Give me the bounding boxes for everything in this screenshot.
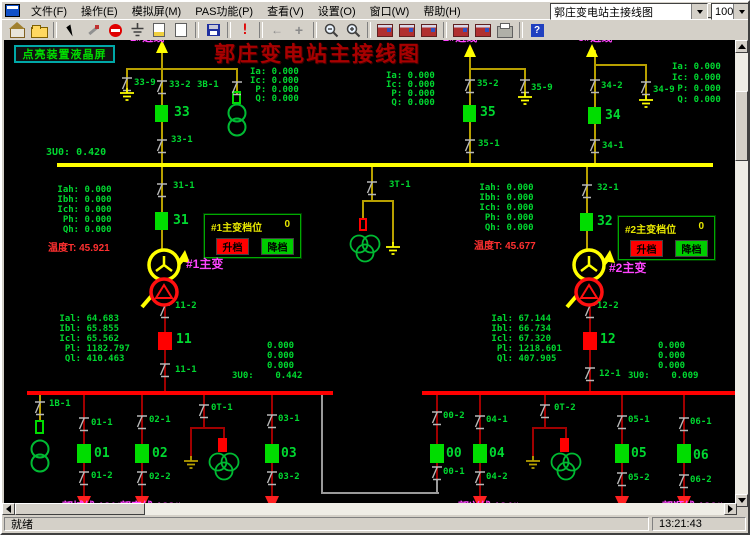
diagram-label: 2#进线 — [443, 40, 477, 44]
diagram-label: 06-2 — [690, 476, 712, 485]
transformer-pt2-icon[interactable] — [224, 103, 250, 144]
alert-icon[interactable]: ! — [234, 21, 256, 39]
disconnector-icon[interactable] — [154, 79, 170, 101]
diagram-label: 3T-1 — [389, 181, 411, 190]
diagram-label: 3U0: 0.442 — [232, 372, 302, 381]
diagram-label: 35-1 — [478, 140, 500, 149]
diagram-label: Icl: 67.320 — [486, 335, 551, 344]
breaker-11[interactable] — [158, 332, 172, 350]
open-icon[interactable] — [28, 21, 50, 39]
diagram-label: 0.000 — [267, 352, 294, 361]
toolbar-separator — [443, 22, 447, 38]
diagram-label: 01 — [94, 447, 110, 460]
tap-panel-1-value: 0 — [284, 219, 290, 234]
diagram-label: 32-1 — [597, 184, 619, 193]
diagram-label: Ia: 0.000 — [672, 63, 721, 72]
transformer-pt3-icon[interactable] — [207, 452, 241, 487]
diagram-label: 03 — [281, 447, 297, 460]
diagram-label: Ial: 64.683 — [54, 315, 119, 324]
view-selector-combobox[interactable]: 郭庄变电站主接线图 — [550, 3, 708, 20]
diagram-label: 02-2 — [149, 473, 171, 482]
zoom-in-icon[interactable] — [342, 21, 364, 39]
disconnector-icon[interactable] — [32, 400, 48, 422]
fuse-icon — [560, 438, 569, 452]
disconnector-icon[interactable] — [76, 416, 92, 438]
diagram-label: 3#进线 — [578, 40, 612, 44]
wire — [392, 200, 394, 244]
diagram-label: Ibl: 66.734 — [486, 325, 551, 334]
diagram-label: P: 0.000 — [672, 85, 721, 94]
diagram-label: Ich: 0.000 — [52, 206, 112, 215]
menu-item[interactable]: 查看(V) — [260, 1, 311, 21]
wire — [190, 427, 225, 429]
breaker-05[interactable] — [615, 444, 629, 463]
diagram-label: 03-1 — [278, 415, 300, 424]
tap-up-button-1[interactable]: 升档 — [216, 238, 249, 255]
disconnector-icon[interactable] — [579, 183, 595, 205]
wire — [532, 427, 567, 429]
flow-arrow-up-icon — [464, 44, 476, 57]
diagram-label: 1#进线 — [130, 40, 164, 44]
app-window: 文件(F)操作(E)模拟屏(M)PAS功能(P)查看(V)设置(O)窗口(W)帮… — [0, 0, 750, 535]
ground-icon — [523, 456, 543, 475]
breaker-34[interactable] — [588, 107, 601, 124]
diagram-label: 35-9 — [531, 84, 553, 93]
diagram-label: 0.000 — [658, 352, 685, 361]
toolbar-separator — [227, 22, 231, 38]
fuse-icon — [35, 420, 44, 434]
tap-panel-2-value: 0 — [698, 221, 704, 236]
breaker-01[interactable] — [77, 444, 91, 463]
device-1-icon[interactable] — [374, 21, 396, 39]
tap-panel-1-title: #1主变档位 — [211, 219, 262, 234]
diagram-label: 04 — [489, 447, 505, 460]
wire — [594, 64, 647, 66]
disconnector-icon[interactable] — [134, 414, 150, 436]
ground-icon — [181, 456, 201, 475]
toolbar-icons: !←+? — [6, 21, 548, 39]
vertical-scroll-thumb[interactable] — [735, 91, 748, 161]
diagram-label: Icl: 65.562 — [54, 335, 119, 344]
diagram-label: 01-1 — [91, 419, 113, 428]
diagram-label: Iah: 0.000 — [52, 186, 112, 195]
diagram-label: 04-1 — [486, 416, 508, 425]
zoom-level-value: 100% — [712, 6, 733, 18]
diagram-label: 3B-1 — [197, 81, 219, 90]
breaker-31[interactable] — [155, 212, 168, 230]
diagram-label: Qh: 0.000 — [52, 226, 112, 235]
diagram-label: 35-2 — [477, 80, 499, 89]
wire — [586, 167, 588, 251]
page-new-icon[interactable] — [170, 21, 192, 39]
diagram-label: 00 — [446, 447, 462, 460]
diagram-label: 06-1 — [690, 418, 712, 427]
disconnector-icon[interactable] — [582, 366, 598, 388]
breaker-02[interactable] — [135, 444, 149, 463]
breaker-32[interactable] — [580, 213, 593, 231]
diagram-label: 12-2 — [597, 302, 619, 311]
mdi-document-icon[interactable] — [5, 4, 20, 17]
home-icon[interactable] — [6, 21, 28, 39]
diagram-label: Pl: 1218.601 — [486, 345, 562, 354]
breaker-12[interactable] — [583, 332, 597, 350]
toolbar: !←+? — [2, 19, 748, 40]
diagram-label: Ic: 0.000 — [672, 74, 721, 83]
diagram-label: 00-2 — [443, 412, 465, 421]
tools-icon[interactable] — [82, 21, 104, 39]
menu-items: 文件(F)操作(E)模拟屏(M)PAS功能(P)查看(V)设置(O)窗口(W)帮… — [24, 1, 468, 21]
disconnector-icon[interactable] — [157, 362, 173, 384]
transformer-pt3-icon[interactable] — [549, 452, 583, 487]
horizontal-scrollbar[interactable] — [2, 503, 737, 515]
disconnector-icon[interactable] — [537, 403, 553, 425]
diagram-label: 0.000 — [658, 342, 685, 351]
diagram-label: 34 — [605, 109, 621, 122]
diagram-label: 12-1 — [599, 370, 621, 379]
toolbar-separator — [53, 22, 57, 38]
diagram-label: Ph: 0.000 — [474, 214, 534, 223]
diagram-label: 31 — [173, 214, 189, 227]
fuse-icon — [218, 438, 227, 452]
toolbar-separator — [367, 22, 371, 38]
wire — [532, 427, 534, 458]
diagram-label: Ql: 407.905 — [486, 355, 556, 364]
diagram-title: 郭庄变电站主接线图 — [214, 40, 421, 68]
toolbar-separator — [195, 22, 199, 38]
wire — [27, 391, 333, 395]
disconnector-icon[interactable] — [196, 403, 212, 425]
diagram-label: Ql: 410.463 — [54, 355, 124, 364]
zoom-level-combobox[interactable]: 100% — [711, 3, 750, 20]
diagram-label: 03-2 — [278, 473, 300, 482]
diagram-label: #2主变 — [609, 262, 646, 274]
diagram-label: 34-1 — [602, 142, 624, 151]
diagram-label: 温度T: 45.921 — [48, 244, 110, 254]
view-selector-value: 郭庄变电站主接线图 — [551, 4, 691, 20]
menu-item[interactable]: 模拟屏(M) — [125, 1, 189, 21]
diagram-label: Q: 0.000 — [672, 96, 721, 105]
diagram-label: 31-1 — [173, 182, 195, 191]
breaker-04[interactable] — [473, 444, 487, 463]
menu-item[interactable]: 文件(F) — [24, 1, 74, 21]
status-time: 13:21:43 — [652, 517, 746, 531]
disconnector-icon[interactable] — [154, 182, 170, 204]
device-4-icon[interactable] — [450, 21, 472, 39]
diagram-label: 02-1 — [149, 416, 171, 425]
menu-item[interactable]: 窗口(W) — [363, 1, 417, 21]
ground-icon[interactable] — [126, 21, 148, 39]
diagram-label: Iah: 0.000 — [474, 184, 534, 193]
wire — [161, 167, 163, 251]
diagram-label: 06 — [693, 449, 709, 462]
menu-item[interactable]: 操作(E) — [74, 1, 125, 21]
disconnector-icon[interactable] — [134, 470, 150, 492]
nav-back-icon[interactable]: ← — [266, 21, 288, 39]
diagram-label: 04-2 — [486, 473, 508, 482]
diagram-label: Pl: 1182.797 — [54, 345, 130, 354]
diagram-label: 0T-2 — [554, 404, 576, 413]
tap-panel-2: #2主变档位 0 升档 降档 — [618, 216, 715, 260]
menu-item[interactable]: 设置(O) — [311, 1, 363, 21]
disconnector-icon[interactable] — [462, 78, 478, 100]
ground-icon — [117, 88, 137, 107]
stop-icon[interactable] — [104, 21, 126, 39]
status-bar: 就绪 13:21:43 — [2, 515, 748, 533]
tap-up-button-2[interactable]: 升档 — [630, 240, 663, 257]
diagram-label: 33 — [174, 106, 190, 119]
tap-panel-1: #1主变档位 0 升档 降档 — [204, 214, 301, 258]
disconnector-icon[interactable] — [229, 80, 245, 102]
diagram-label: 34-2 — [601, 82, 623, 91]
diagram-label: 34-9 — [653, 86, 675, 95]
diagram-label: 11-1 — [175, 366, 197, 375]
disconnector-icon[interactable] — [154, 138, 170, 160]
diagram-label: 00-1 — [443, 468, 465, 477]
diagram-label: 05-2 — [628, 474, 650, 483]
breaker-00[interactable] — [430, 444, 444, 463]
tap-down-button-2[interactable]: 降档 — [675, 240, 708, 257]
diagram-label: 35 — [480, 106, 496, 119]
diagram-label: 3U0: 0.420 — [46, 148, 106, 158]
menu-item[interactable]: 帮助(H) — [416, 1, 467, 21]
diagram-label: 0.000 — [267, 362, 294, 371]
diagram-label: Ich: 0.000 — [474, 204, 534, 213]
diagram-label: 1B-1 — [49, 400, 71, 409]
scroll-left-icon[interactable] — [2, 503, 15, 515]
disconnector-icon[interactable] — [76, 470, 92, 492]
menu-item[interactable]: PAS功能(P) — [188, 1, 260, 21]
diagram-label: 0.000 — [658, 362, 685, 371]
breaker-03[interactable] — [265, 444, 279, 463]
horizontal-scroll-thumb[interactable] — [15, 503, 145, 515]
printer-icon[interactable] — [494, 21, 516, 39]
disconnector-icon[interactable] — [364, 180, 380, 202]
breaker-33[interactable] — [155, 105, 168, 122]
diagram-label: 12 — [600, 333, 616, 346]
diagram-label: 温度T: 45.677 — [474, 242, 536, 252]
diagram-label: Qh: 0.000 — [474, 224, 534, 233]
toolbar-separator — [313, 22, 317, 38]
diagram-label: Ph: 0.000 — [52, 216, 112, 225]
scada-canvas: 郭庄变电站主接线图 点亮装置液晶屏 #1主变档位 0 升档 降档 #2主变档位 … — [4, 40, 737, 507]
scroll-up-icon[interactable] — [735, 40, 748, 53]
diagram-label: 11-2 — [175, 302, 197, 311]
breaker-06[interactable] — [677, 444, 691, 463]
diagram-label: Ibl: 65.855 — [54, 325, 119, 334]
status-ready: 就绪 — [4, 517, 649, 531]
save-icon[interactable] — [202, 21, 224, 39]
vertical-scrollbar[interactable] — [735, 40, 748, 507]
diagram-label: 3U0: 0.009 — [628, 372, 698, 381]
diagram-label: 02 — [152, 447, 168, 460]
page-color-icon[interactable] — [148, 21, 170, 39]
scroll-right-icon[interactable] — [724, 503, 737, 515]
flow-arrow-up-icon — [586, 44, 598, 57]
wire — [126, 68, 238, 70]
wire — [57, 163, 713, 167]
toolbar-separator — [259, 22, 263, 38]
transformer-pt2-icon[interactable] — [27, 439, 53, 480]
ground-icon — [515, 92, 535, 111]
wire — [362, 200, 364, 220]
diagram-label: Q: 0.000 — [386, 99, 435, 108]
diagram-label: 11 — [176, 333, 192, 346]
diagram-label: Q: 0.000 — [250, 95, 299, 104]
wire — [321, 492, 439, 494]
diagram-label: 01-2 — [91, 472, 113, 481]
disconnector-icon[interactable] — [587, 138, 603, 160]
diagram-label: 05-1 — [628, 416, 650, 425]
diagram-label: Ial: 67.144 — [486, 315, 551, 324]
diagram-label: 05 — [631, 447, 647, 460]
wire — [321, 395, 323, 494]
tap-down-button-1[interactable]: 降档 — [261, 238, 294, 255]
zoom-out-icon[interactable] — [320, 21, 342, 39]
diagram-label: #1主变 — [186, 258, 223, 270]
chevron-down-icon[interactable] — [733, 4, 749, 19]
tap-panel-2-title: #2主变档位 — [625, 221, 676, 236]
wire — [422, 391, 736, 395]
diagram-label: Ibh: 0.000 — [474, 194, 534, 203]
disconnector-icon[interactable] — [462, 138, 478, 160]
diagram-label: 0T-1 — [211, 404, 233, 413]
wire — [469, 68, 526, 70]
device-3-icon[interactable] — [418, 21, 440, 39]
cursor-icon[interactable] — [60, 21, 82, 39]
fuse-icon — [359, 218, 367, 231]
ground-icon — [636, 95, 656, 114]
ground-icon — [383, 242, 403, 261]
transformer-pt3-icon[interactable] — [348, 234, 382, 269]
diagram-label: Ibh: 0.000 — [52, 196, 112, 205]
help-icon[interactable]: ? — [526, 21, 548, 39]
add-icon[interactable]: + — [288, 21, 310, 39]
wire — [190, 427, 192, 458]
lcd-screen-button[interactable]: 点亮装置液晶屏 — [14, 45, 115, 63]
device-5-icon[interactable] — [472, 21, 494, 39]
diagram-label: 0.000 — [267, 342, 294, 351]
device-2-icon[interactable] — [396, 21, 418, 39]
toolbar-separator — [519, 22, 523, 38]
breaker-35[interactable] — [463, 105, 476, 122]
diagram-label: 32 — [597, 215, 613, 228]
diagram-label: 33-9 — [134, 79, 156, 88]
chevron-down-icon[interactable] — [691, 4, 707, 19]
diagram-label: 33-1 — [171, 136, 193, 145]
diagram-label: 33-2 — [169, 81, 191, 90]
